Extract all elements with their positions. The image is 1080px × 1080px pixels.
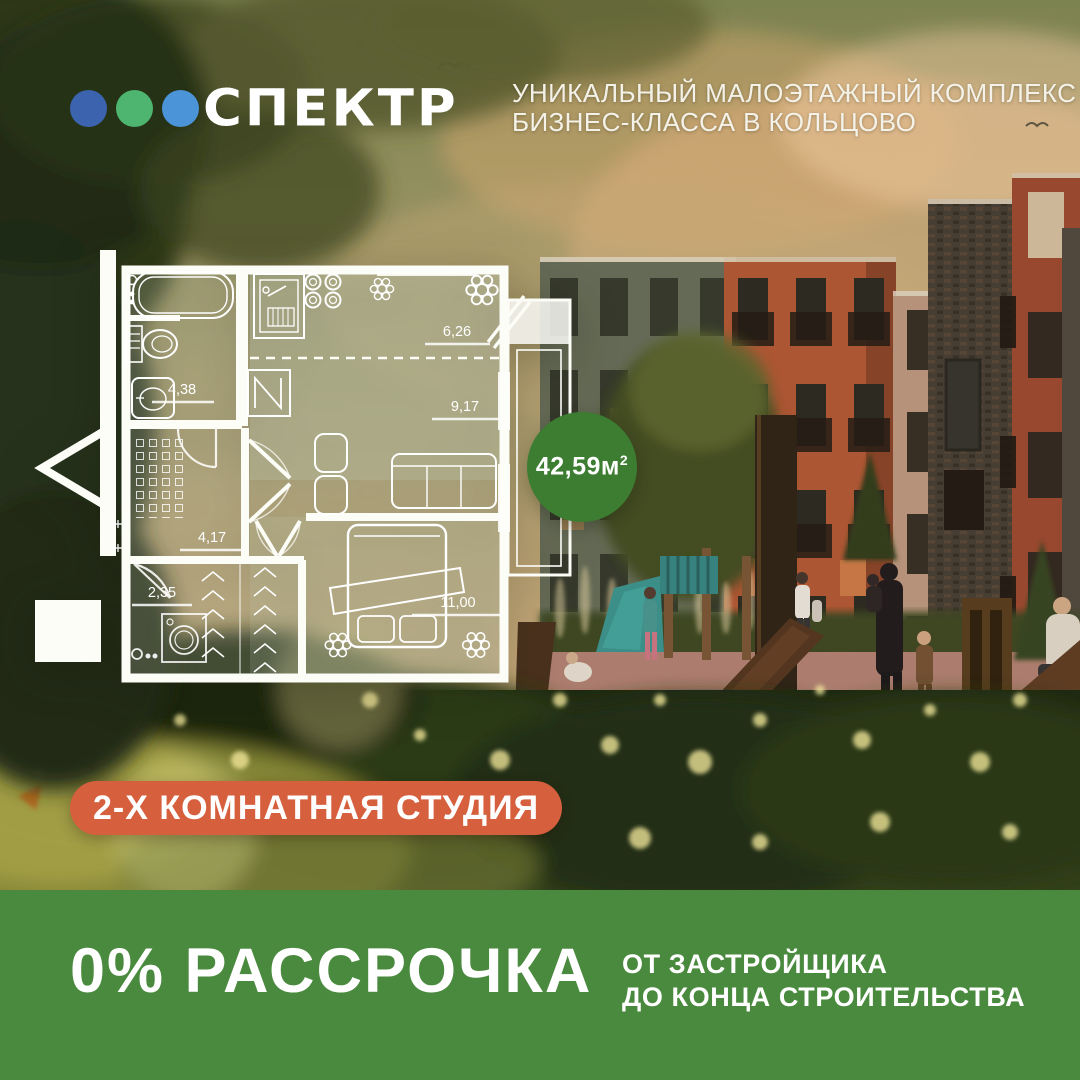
entry-arrow	[42, 430, 106, 506]
brand-name: СПЕКТР	[203, 83, 459, 134]
tagline: УНИКАЛЬНЫЙ МАЛОЭТАЖНЫЙ КОМПЛЕКС БИЗНЕС-К…	[512, 79, 1076, 137]
room-area-label: 4,17	[198, 530, 226, 546]
total-area-value: 42,59м2	[536, 452, 628, 481]
plan-walls	[35, 250, 116, 662]
entry-mat	[131, 438, 185, 518]
logo-dot-lightblue	[162, 90, 199, 127]
room-area-label: 11,00	[440, 595, 475, 611]
offer-subline-1: ОТ ЗАСТРОЙЩИКА	[622, 948, 1025, 981]
offer-subline: ОТ ЗАСТРОЙЩИКА ДО КОНЦА СТРОИТЕЛЬСТВА	[622, 948, 1025, 1014]
room-area-label: 9,17	[451, 399, 479, 415]
logo-dot-blue	[70, 90, 107, 127]
tagline-line-1: УНИКАЛЬНЫЙ МАЛОЭТАЖНЫЙ КОМПЛЕКС	[512, 79, 1076, 108]
room-area-label: 6,26	[443, 324, 471, 340]
apartment-type-label: 2-Х КОМНАТНАЯ СТУДИЯ	[93, 789, 539, 828]
apartment-type-badge: 2-Х КОМНАТНАЯ СТУДИЯ	[70, 781, 562, 835]
logo-dot-green	[116, 90, 153, 127]
brand-logo: СПЕКТР	[70, 82, 459, 135]
ad-poster: 4,38 6,26 9,17 4,17 2,35 11,00 42,59м2 С…	[0, 0, 1080, 1080]
tagline-line-2: БИЗНЕС-КЛАССА В КОЛЬЦОВО	[512, 108, 1076, 137]
room-area-label: 2,35	[148, 585, 176, 601]
offer-subline-2: ДО КОНЦА СТРОИТЕЛЬСТВА	[622, 981, 1025, 1014]
total-area-badge: 42,59м2	[527, 412, 637, 522]
offer-headline: 0% РАССРОЧКА	[70, 938, 592, 1004]
room-area-label: 4,38	[168, 382, 196, 398]
